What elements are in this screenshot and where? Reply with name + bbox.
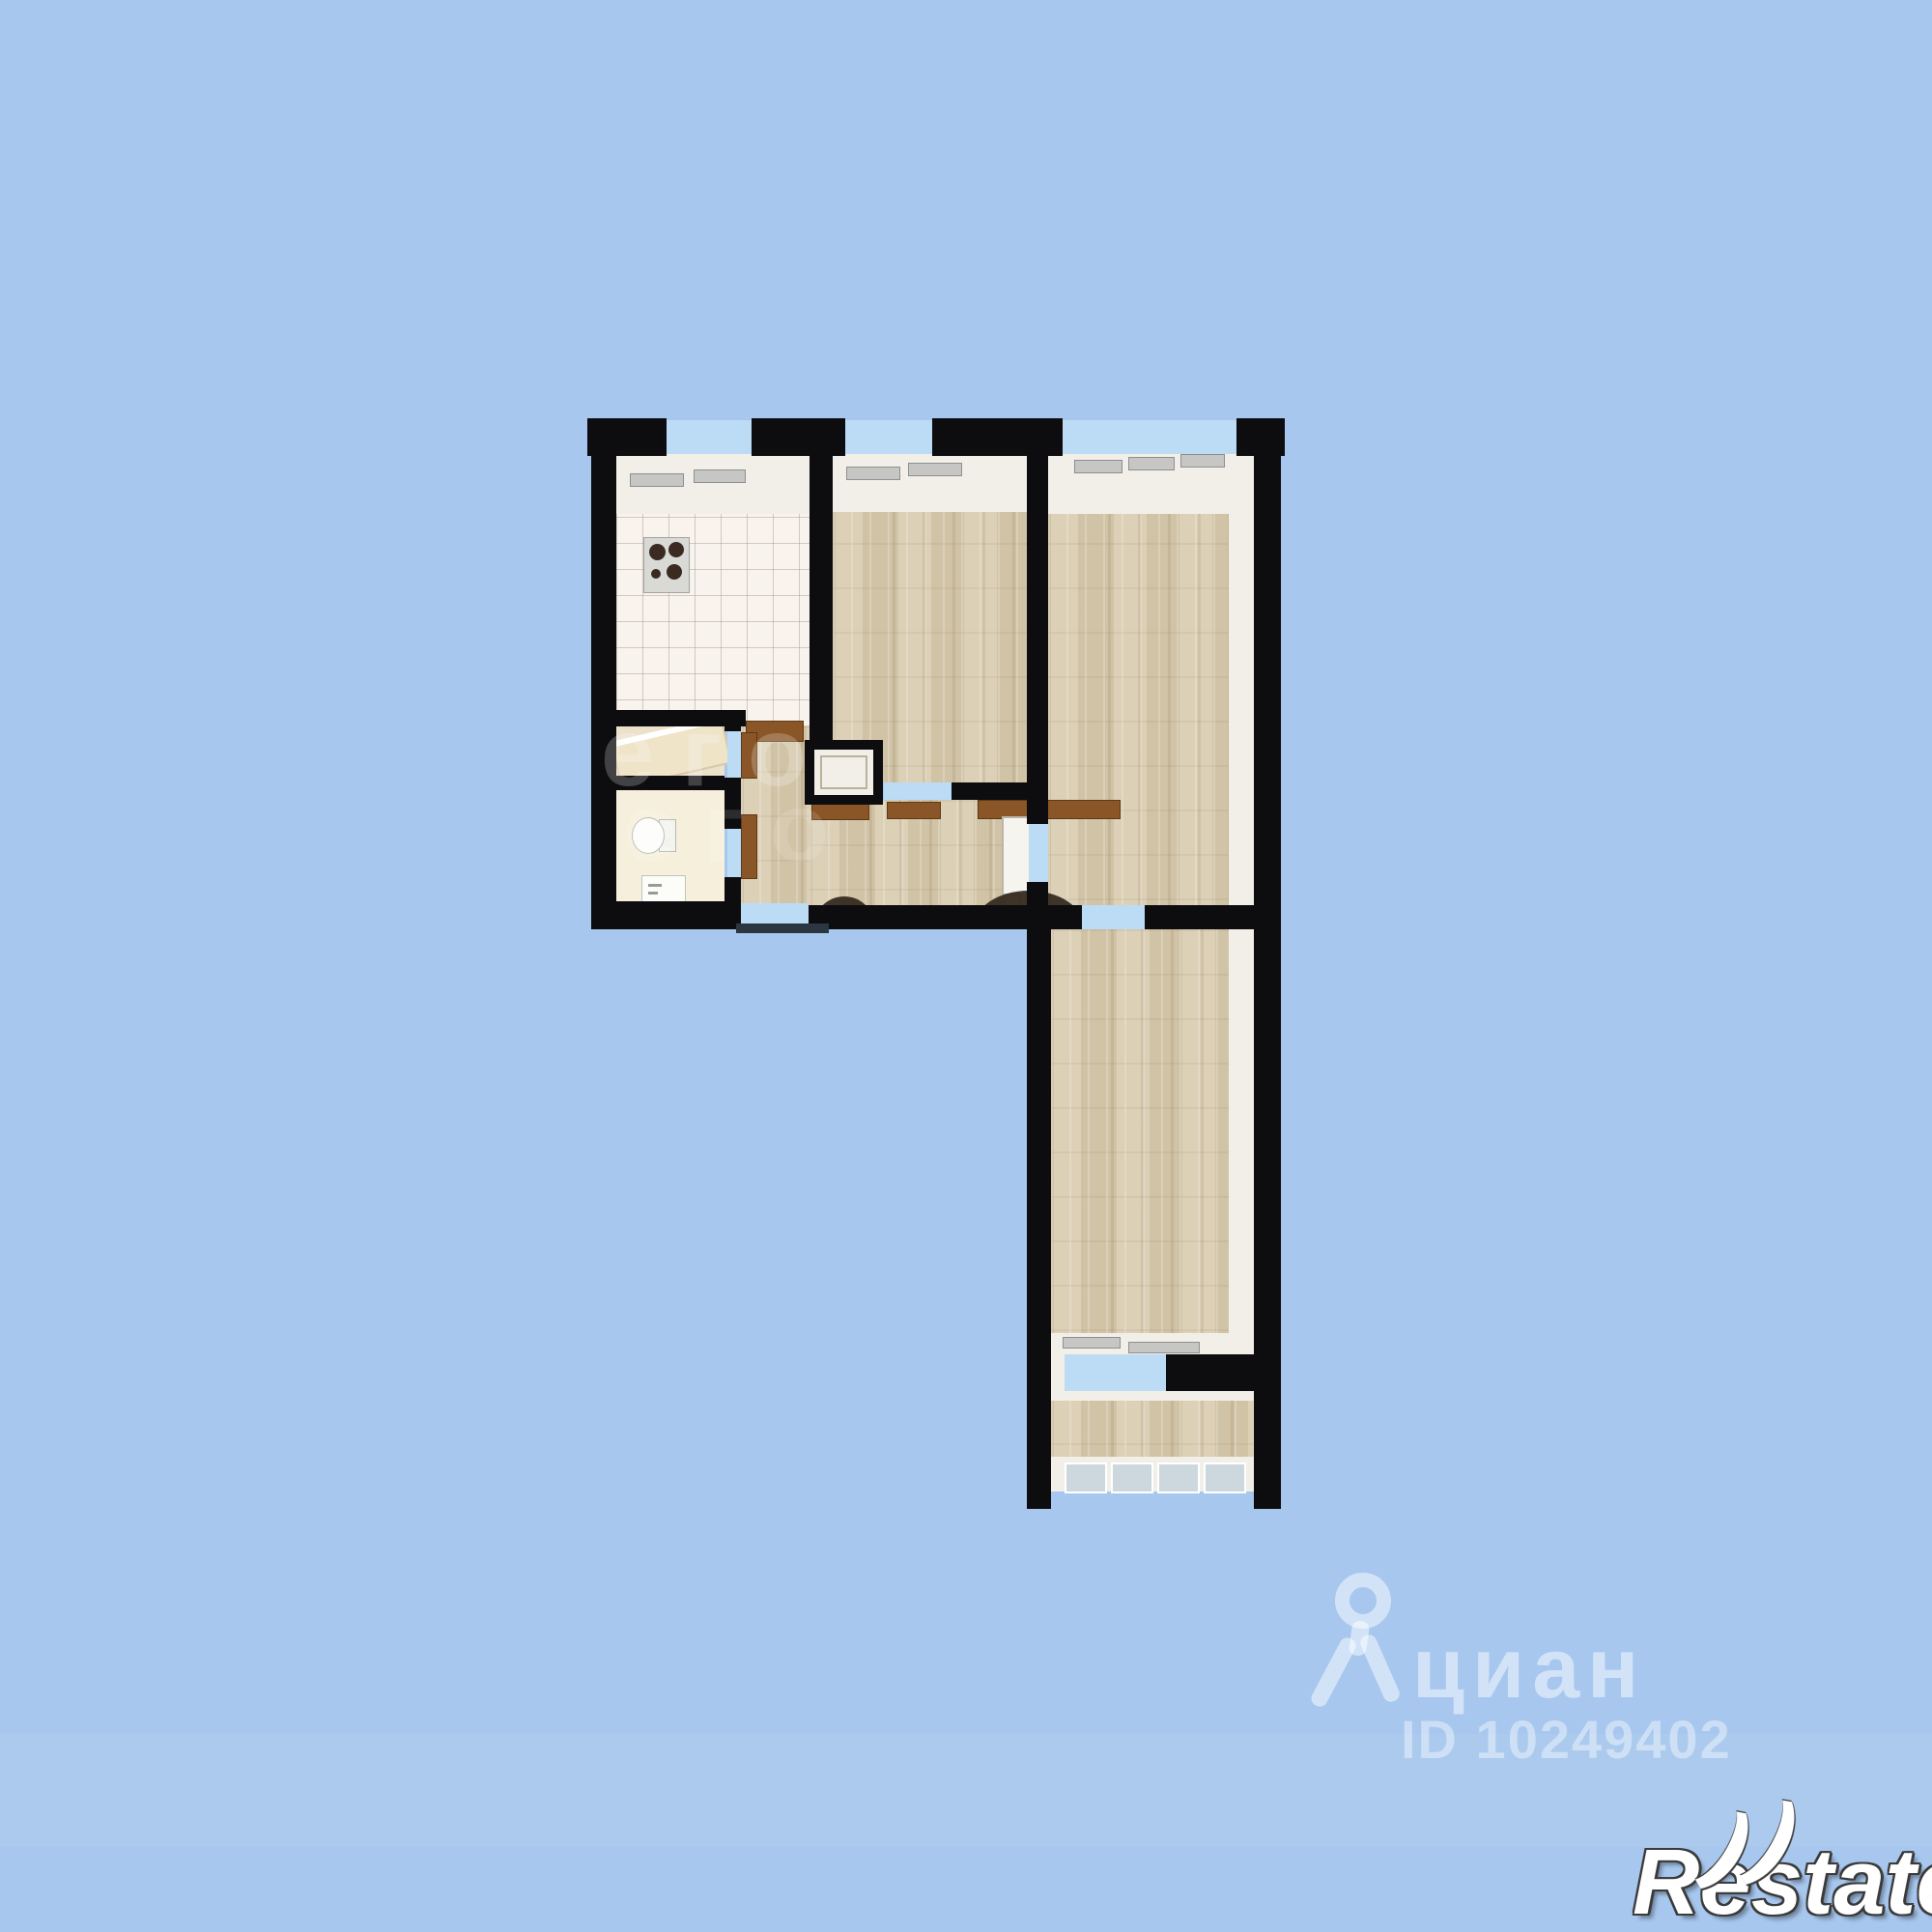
cian-id-text: ID 10249402	[1401, 1708, 1732, 1771]
wall-room-bottom-top-right	[1145, 905, 1254, 929]
balcony-pane-2	[1111, 1463, 1153, 1493]
outer-wall-bottom-mid	[809, 905, 1029, 929]
cian-watermark: циан ID 10249402	[1314, 1565, 1758, 1787]
wall-balcony-pier	[1166, 1354, 1254, 1391]
stove-icon	[643, 537, 690, 593]
balcony-floor	[1051, 1399, 1254, 1457]
faint-watermark-line-2: его	[623, 773, 856, 884]
outer-wall-bottom-left	[591, 901, 741, 929]
room-right-sill-bar-3	[1180, 454, 1225, 468]
floor-plan-image: его его циан ID 10249402 Restate	[0, 0, 1932, 1932]
kitchen-sill-bar-2	[694, 469, 746, 483]
outer-wall-right	[1254, 418, 1281, 1509]
balcony-door-sill-bar-1	[1063, 1337, 1121, 1349]
balcony-pane-4	[1204, 1463, 1246, 1493]
room-middle-window	[845, 420, 932, 454]
room-right-sill-bar-2	[1128, 457, 1175, 470]
room-middle-sill-bar-1	[846, 467, 900, 480]
kitchen-sill-bar-1	[630, 473, 684, 487]
wall-middle-room-bottom	[952, 782, 1029, 800]
room-middle-sill-bar-2	[908, 463, 962, 476]
balcony-inner-edge	[1051, 1391, 1254, 1401]
wall-middle-right	[1027, 454, 1048, 824]
room-middle-door-opening	[884, 782, 952, 800]
room-right-door-opening	[1029, 824, 1048, 882]
entrance-door-leaf	[736, 923, 829, 933]
cian-pin-ring	[1335, 1573, 1391, 1629]
room-bottom-floor	[1051, 929, 1229, 1333]
outer-wall-top-segment-1	[752, 418, 845, 456]
cian-brand-text: циан	[1412, 1619, 1646, 1718]
outer-wall-column-left	[1027, 929, 1051, 1509]
balcony-pane-1	[1065, 1463, 1107, 1493]
room-right-floor	[1048, 454, 1256, 905]
washing-machine-mark	[648, 892, 658, 895]
room-right-sill-bar-1	[1074, 460, 1122, 473]
stove-burner	[651, 569, 661, 579]
stove-burner	[668, 542, 684, 557]
room-right-window	[1063, 420, 1236, 454]
wall-room-bottom-top-left	[1029, 905, 1082, 929]
balcony-window-jamb	[1051, 1354, 1065, 1391]
hallway-door-leaf-wide	[978, 800, 1121, 819]
room-middle-door-leaf	[887, 802, 941, 819]
balcony-pane-3	[1157, 1463, 1200, 1493]
outer-wall-top-segment-2	[932, 418, 1063, 456]
stove-burner	[649, 544, 666, 560]
washing-machine-mark	[648, 884, 662, 887]
restate-watermark: Restate	[1633, 1808, 1932, 1932]
outer-wall-left	[591, 418, 616, 929]
kitchen-window	[667, 420, 752, 454]
room-bottom-wall-face	[1229, 929, 1256, 1354]
room-bottom-door-opening	[1082, 905, 1145, 929]
balcony-window	[1065, 1354, 1166, 1391]
stove-burner	[667, 564, 682, 580]
balcony-door-sill-bar-2	[1128, 1342, 1200, 1353]
room-right-wall-face	[1229, 454, 1256, 905]
